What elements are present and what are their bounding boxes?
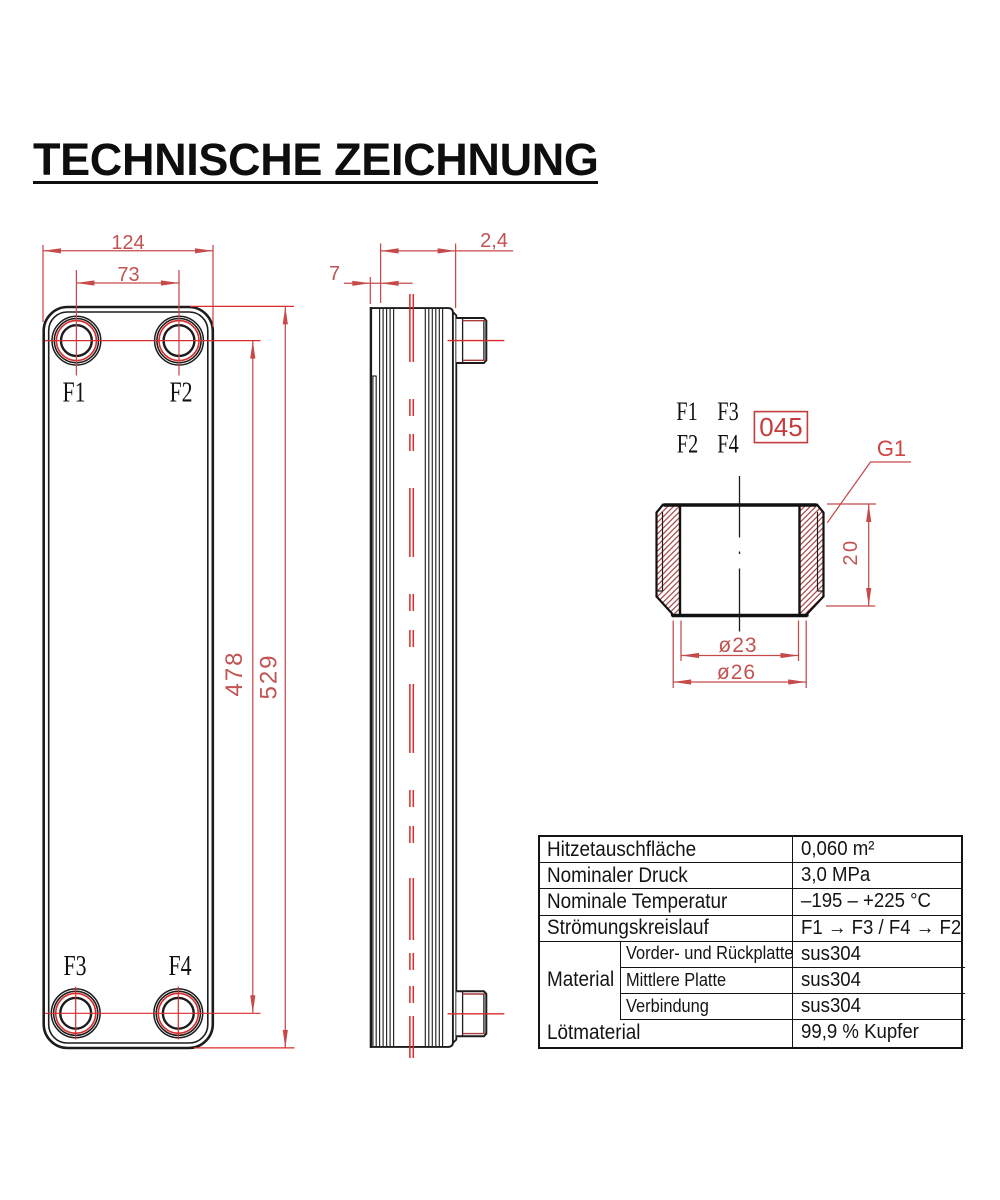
svg-text:F4: F4 (717, 430, 739, 459)
svg-text:73: 73 (117, 264, 139, 286)
svg-text:478: 478 (221, 650, 248, 696)
svg-text:529: 529 (256, 653, 283, 699)
svg-text:ø23: ø23 (718, 634, 757, 657)
svg-text:20: 20 (840, 538, 862, 565)
svg-text:F1: F1 (676, 398, 697, 427)
svg-text:F2: F2 (677, 430, 698, 459)
svg-text:7: 7 (329, 263, 340, 285)
svg-text:F2: F2 (169, 378, 192, 408)
svg-text:F3: F3 (63, 952, 86, 982)
svg-text:124: 124 (111, 232, 144, 254)
svg-text:045: 045 (759, 412, 802, 442)
svg-text:F1: F1 (62, 378, 85, 408)
svg-text:ø26: ø26 (717, 661, 756, 684)
svg-text:G1: G1 (877, 436, 906, 461)
svg-text:2,4: 2,4 (480, 230, 508, 252)
svg-text:F4: F4 (168, 952, 191, 982)
svg-text:F3: F3 (717, 398, 738, 427)
